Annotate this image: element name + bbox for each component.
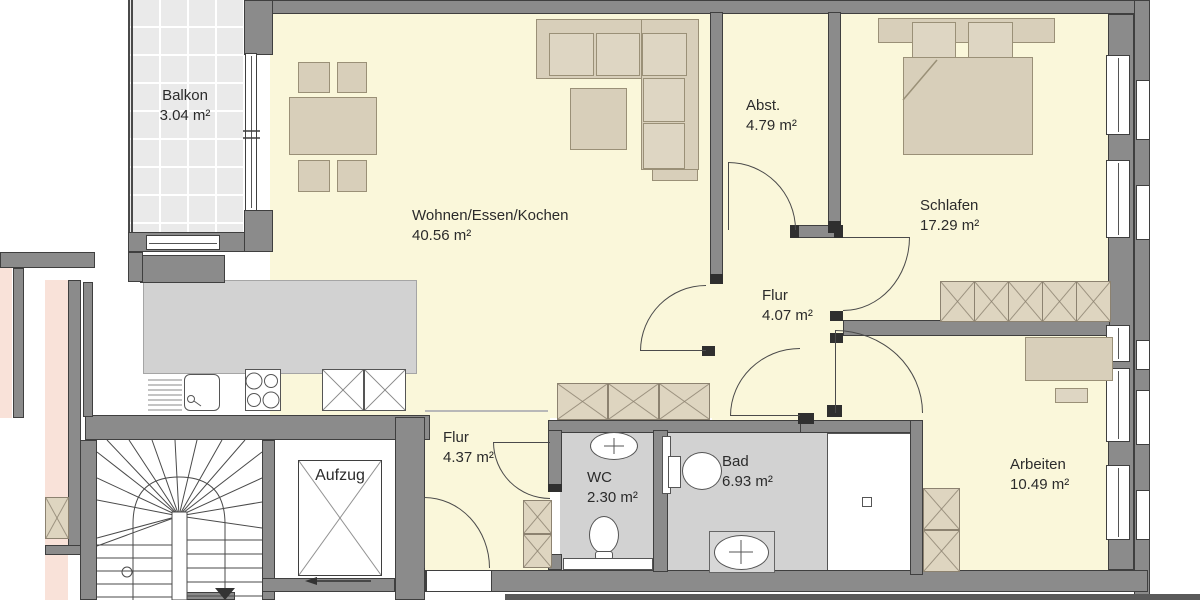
room-name: WC (587, 468, 638, 488)
desk-keyboard (1055, 388, 1088, 403)
balcony-window (245, 53, 257, 211)
wall-under-counter (85, 415, 430, 440)
label-schlafen: Schlafen 17.29 m² (920, 196, 979, 235)
wall-bedroom-office (843, 320, 1110, 336)
elevator-arrow-icon (305, 576, 375, 586)
label-aufzug: Aufzug (298, 466, 382, 487)
wall-left-vertical (13, 268, 24, 418)
wall-left-horizontal (0, 252, 95, 268)
room-area: 4.07 m² (762, 306, 813, 326)
wall-core-divider (262, 440, 275, 600)
wall-kitchen-chunk2 (128, 252, 143, 282)
label-wohnen: Wohnen/Essen/Kochen 40.56 m² (412, 206, 569, 245)
wc-toilet-bowl (589, 516, 619, 554)
wc-sink (590, 432, 638, 460)
cap-wc-wall (548, 484, 562, 492)
label-bad: Bad 6.93 m² (722, 452, 773, 491)
label-flur-innen: Flur 4.07 m² (762, 286, 813, 325)
room-name: Aufzug (298, 466, 382, 487)
wall-bottom-strip (505, 594, 1200, 600)
sofa-cushion (642, 33, 687, 76)
sofa-cushion (643, 78, 685, 122)
wardrobe-entry (523, 534, 552, 568)
room-name: Abst. (746, 96, 797, 116)
balcony-door-window (146, 235, 220, 250)
wardrobe-bedroom (974, 281, 1009, 322)
window-office-2 (1106, 465, 1130, 540)
bath-toilet-bowl (682, 452, 722, 490)
wall-core-left (80, 440, 97, 600)
room-area: 17.29 m² (920, 216, 979, 236)
wall-wc-left (548, 430, 562, 492)
wall-living-storage (710, 12, 723, 283)
room-name: Arbeiten (1010, 455, 1069, 475)
dining-chair (337, 62, 367, 93)
coffee-table (570, 88, 627, 150)
bed-pillow (912, 22, 956, 58)
facade-window-1 (1136, 80, 1150, 140)
sofa-cushion (596, 33, 640, 76)
dining-chair (298, 62, 330, 93)
label-flur-eingang: Flur 4.37 m² (443, 428, 494, 467)
wardrobe-office (923, 530, 960, 572)
cap-bath-door (798, 413, 814, 424)
wardrobe-hall (659, 383, 710, 420)
bed-pillow (968, 22, 1013, 58)
sofa-cushion (643, 123, 685, 169)
wardrobe-hall (608, 383, 659, 420)
wardrobe-adjacent (45, 497, 69, 539)
facade-window-5 (1136, 490, 1150, 540)
room-area: 6.93 m² (722, 472, 773, 492)
adjacent-unit-left (0, 268, 12, 418)
wall-wc-top (548, 420, 813, 433)
wall-balcony-right-top (244, 0, 273, 55)
wall-shaft-top (800, 420, 923, 433)
kitchen-sink (184, 374, 220, 411)
room-name: Flur (762, 286, 813, 306)
facade-window-3 (1136, 340, 1150, 370)
room-name: Flur (443, 428, 494, 448)
dining-chair (298, 160, 330, 192)
dining-chair (337, 160, 367, 192)
room-name: Wohnen/Essen/Kochen (412, 206, 569, 226)
floor-plan: Balkon 3.04 m² Wohnen/Essen/Kochen 40.56… (0, 0, 1200, 600)
label-balkon: Balkon 3.04 m² (145, 86, 225, 125)
room-area: 4.37 m² (443, 448, 494, 468)
wall-shaft-right (910, 420, 923, 575)
room-name: Balkon (145, 86, 225, 106)
facade-window-2 (1136, 185, 1150, 240)
kitchen-cabinet (322, 369, 364, 411)
bath-toilet-tank (668, 456, 681, 488)
room-area: 3.04 m² (145, 106, 225, 126)
wardrobe-bedroom (1042, 281, 1077, 322)
wall-bedroom-left (828, 12, 841, 233)
window-bedroom-1 (1106, 55, 1130, 135)
wall-balcony-right-bottom (244, 210, 273, 252)
sofa-cushion (549, 33, 594, 76)
wall-adjacent-inner (83, 282, 93, 417)
cap-hall-upper (830, 311, 843, 321)
window-bedroom-2 (1106, 160, 1130, 238)
room-area: 40.56 m² (412, 226, 569, 246)
bed-headboard (878, 18, 1055, 43)
wardrobe-office (923, 488, 960, 530)
wardrobe-entry (523, 500, 552, 534)
cap-living-wall (710, 274, 723, 284)
kitchen-stove (245, 369, 281, 411)
room-name: Schlafen (920, 196, 979, 216)
wall-top (244, 0, 1148, 14)
wall-core-right (395, 417, 425, 600)
wardrobe-bedroom (940, 281, 975, 322)
room-area: 4.79 m² (746, 116, 797, 136)
wall-bottom (425, 570, 1148, 592)
floor-kitchen (143, 280, 417, 374)
wall-adjacent-stub (45, 545, 81, 555)
facade-window-4 (1136, 390, 1150, 445)
dining-table (289, 97, 377, 155)
sofa-foot (652, 169, 698, 181)
room-name: Bad (722, 452, 773, 472)
label-abstellraum: Abst. 4.79 m² (746, 96, 797, 135)
label-arbeiten: Arbeiten 10.49 m² (1010, 455, 1069, 494)
room-area: 2.30 m² (587, 488, 638, 508)
bed (903, 57, 1033, 155)
wardrobe-bedroom (1008, 281, 1043, 322)
room-area: 10.49 m² (1010, 475, 1069, 495)
wall-kitchen-chunk (140, 255, 225, 283)
entrance-threshold (426, 570, 492, 592)
cap-storage-right (834, 225, 843, 238)
kitchen-cabinet (364, 369, 406, 411)
bath-tub (714, 535, 769, 570)
desk (1025, 337, 1113, 381)
wardrobe-bedroom (1076, 281, 1111, 322)
wardrobe-hall (557, 383, 608, 420)
label-wc: WC 2.30 m² (587, 468, 638, 507)
wc-shelf (563, 558, 653, 570)
staircase (97, 440, 262, 600)
shaft-duct (862, 497, 872, 507)
